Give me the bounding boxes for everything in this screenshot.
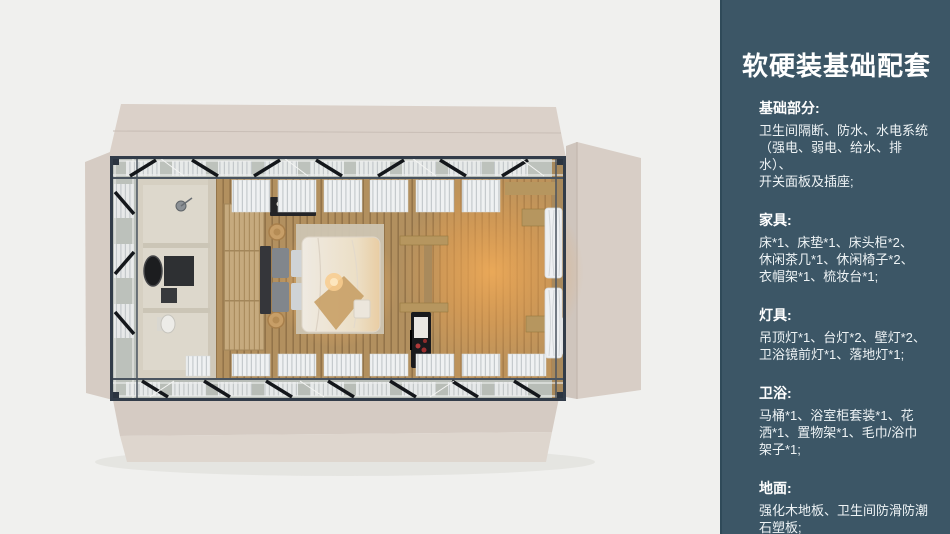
floorplan-render — [0, 0, 720, 534]
section-furniture-heading: 家具: — [759, 211, 930, 230]
section-basics-body: 卫生间隔断、防水、水电系统 （强电、弱电、给水、排水）、 开关面板及插座; — [759, 122, 930, 190]
toilet — [157, 315, 175, 333]
section-furniture: 家具: 床*1、床垫*1、床头柜*2、 休闲茶几*1、休闲椅子*2、 衣帽架*1… — [759, 211, 930, 285]
top-wood-ledge — [505, 182, 556, 195]
bathroom — [137, 178, 216, 378]
wardrobe — [224, 204, 264, 350]
section-flooring-body: 强化木地板、卫生间防滑防潮 石塑板; — [759, 502, 930, 534]
panel-title: 软硬装基础配套 — [742, 50, 930, 82]
section-lighting-heading: 灯具: — [759, 306, 930, 325]
slide: 软硬装基础配套 基础部分: 卫生间隔断、防水、水电系统 （强电、弱电、给水、排水… — [0, 0, 950, 534]
section-flooring: 地面: 强化木地板、卫生间防滑防潮 石塑板; — [759, 479, 930, 534]
info-panel: 软硬装基础配套 基础部分: 卫生间隔断、防水、水电系统 （强电、弱电、给水、排水… — [720, 0, 950, 534]
section-furniture-body: 床*1、床垫*1、床头柜*2、 休闲茶几*1、休闲椅子*2、 衣帽架*1、梳妆台… — [759, 234, 930, 285]
section-bathroom-heading: 卫浴: — [759, 384, 930, 403]
section-basics: 基础部分: 卫生间隔断、防水、水电系统 （强电、弱电、给水、排水）、 开关面板及… — [759, 99, 930, 190]
section-flooring-heading: 地面: — [759, 479, 930, 498]
section-lighting: 灯具: 吊顶灯*1、台灯*2、壁灯*2、 卫浴镜前灯*1、落地灯*1; — [759, 306, 930, 363]
section-bathroom: 卫浴: 马桶*1、浴室柜套装*1、花 洒*1、置物架*1、毛巾/浴巾 架子*1; — [759, 384, 930, 458]
section-basics-heading: 基础部分: — [759, 99, 930, 118]
section-bathroom-body: 马桶*1、浴室柜套装*1、花 洒*1、置物架*1、毛巾/浴巾 架子*1; — [759, 407, 930, 458]
section-lighting-body: 吊顶灯*1、台灯*2、壁灯*2、 卫浴镜前灯*1、落地灯*1; — [759, 329, 930, 363]
headboard — [260, 246, 271, 314]
